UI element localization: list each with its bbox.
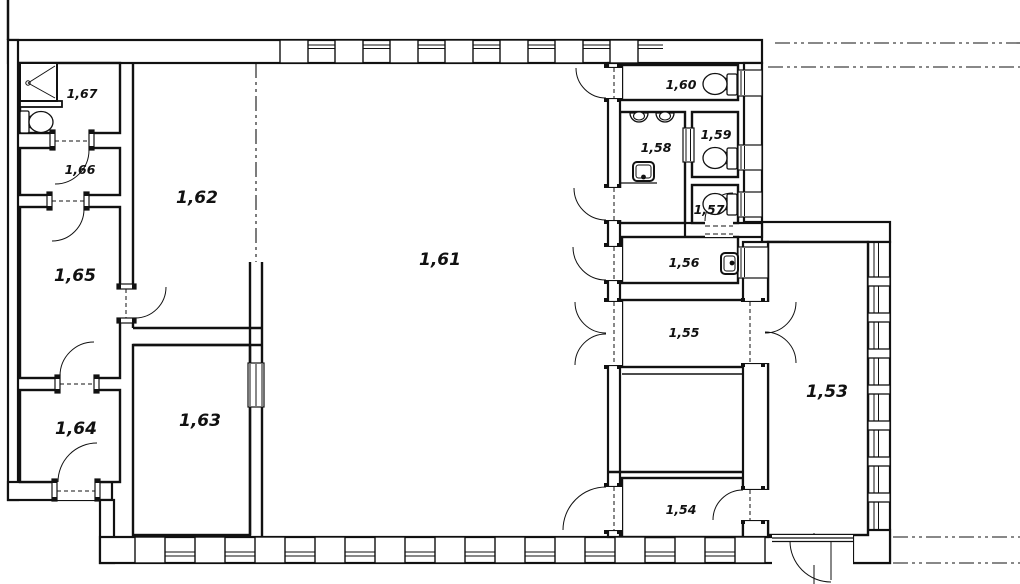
door-jamb-block	[617, 243, 621, 247]
room-label-1-59: 1,59	[701, 127, 732, 142]
room-label-1-61: 1,61	[419, 250, 461, 270]
room-label-1-56: 1,56	[669, 255, 700, 270]
door-jamb-block	[604, 365, 608, 369]
bottom-wall-pier	[615, 537, 645, 563]
sink-icon	[633, 162, 654, 181]
door-jamb-block	[52, 479, 57, 483]
door-jamb-block	[117, 318, 121, 323]
top-wall-pier	[390, 40, 418, 63]
door-jamb-block	[741, 486, 745, 490]
walls	[8, 40, 890, 563]
door-opening	[55, 480, 97, 500]
door-jamb-block	[617, 64, 621, 68]
door-opening	[772, 535, 853, 565]
door-jamb-block	[84, 206, 89, 210]
right-wall-pier	[868, 421, 890, 430]
top-wall-pier	[280, 40, 308, 63]
bottom-wall-pier	[375, 537, 405, 563]
room-label-1-54: 1,54	[666, 502, 697, 517]
door-jamb-block	[761, 363, 765, 367]
room-label-1-60: 1,60	[666, 77, 697, 92]
wall-window	[738, 70, 762, 96]
shower-icon	[20, 63, 57, 101]
bottom-wall-pier	[555, 537, 585, 563]
door-jamb-block	[52, 497, 57, 501]
corridor-wall	[743, 363, 768, 490]
hall-wall	[608, 220, 620, 247]
outer-wall	[8, 40, 18, 500]
door-jamb-block	[617, 483, 621, 487]
outer-wall	[8, 40, 762, 63]
door-jamb-block	[604, 64, 608, 68]
right-wall-pier	[868, 457, 890, 466]
room-label-1-62: 1,62	[176, 188, 218, 208]
hall-wall	[608, 365, 620, 487]
wall-opening	[683, 128, 694, 162]
door-jamb-block	[617, 280, 621, 284]
bottom-wall-pier	[735, 537, 765, 563]
floor-plan-canvas: 1,671,661,651,641,621,631,611,601,581,59…	[0, 0, 1020, 584]
door-jamb-block	[84, 192, 89, 196]
door-jamb-block	[761, 486, 765, 490]
door-jamb-block	[617, 98, 621, 102]
door-swing-arc	[563, 487, 606, 530]
door-jamb-block	[604, 243, 608, 247]
door-swing-arc	[575, 302, 606, 333]
room-label-1-55: 1,55	[669, 325, 700, 340]
room-label-1-65: 1,65	[54, 266, 96, 286]
door-swing-arc	[575, 334, 606, 365]
door-swing-arc	[576, 68, 606, 98]
wall-window	[738, 247, 768, 278]
door-jamb-block	[617, 530, 621, 534]
bottom-wall-pier	[255, 537, 285, 563]
door-jamb-block	[47, 192, 52, 196]
room-label-1-63: 1,63	[179, 411, 221, 431]
door-jamb-block	[617, 184, 621, 188]
door-jamb-block	[617, 298, 621, 302]
door-jamb-block	[50, 130, 55, 134]
door-swing-arc	[135, 287, 166, 318]
toilet-icon	[703, 74, 737, 96]
door-jamb-block	[741, 298, 745, 302]
top-wall-pier	[610, 40, 638, 63]
top-wall-pier	[335, 40, 363, 63]
top-wall-pier	[555, 40, 583, 63]
door-jamb-block	[761, 520, 765, 524]
door-jamb-block	[617, 365, 621, 369]
door-jamb-block	[741, 520, 745, 524]
door-opening	[705, 221, 733, 237]
toilet-icon	[20, 111, 53, 133]
outer-wall	[762, 222, 890, 242]
right-wall-pier	[868, 493, 890, 502]
right-wall-pier	[868, 313, 890, 322]
sink-icon	[721, 253, 738, 274]
room-label-1-64: 1,64	[55, 419, 97, 439]
door-jamb-block	[55, 389, 60, 393]
door-jamb-block	[604, 298, 608, 302]
right-wall-pier	[868, 349, 890, 358]
door-jamb-block	[95, 497, 100, 501]
door-jamb-block	[89, 146, 94, 150]
door-jamb-block	[94, 375, 99, 379]
door-opening	[741, 490, 770, 520]
room-label-1-66: 1,66	[65, 162, 96, 177]
top-wall-pier	[445, 40, 473, 63]
right-wall-pier	[868, 385, 890, 394]
bottom-wall-pier	[435, 537, 465, 563]
door-jamb-block	[95, 479, 100, 483]
door-jamb-block	[604, 530, 608, 534]
door-jamb-block	[604, 184, 608, 188]
door-jamb-block	[55, 375, 60, 379]
right-wall-pier	[868, 277, 890, 286]
room-wall	[133, 345, 250, 535]
room-label-1-58: 1,58	[641, 140, 672, 155]
door-jamb-block	[604, 280, 608, 284]
bottom-wall-pier	[495, 537, 525, 563]
bottom-wall-pier	[135, 537, 165, 563]
door-jamb-block	[617, 220, 621, 224]
bottom-wall-pier	[195, 537, 225, 563]
door-jamb-block	[132, 318, 136, 323]
room-label-1-53: 1,53	[806, 382, 848, 402]
top-wall-pier	[500, 40, 528, 63]
bottom-wall-pier	[675, 537, 705, 563]
wall-window	[738, 192, 762, 217]
door-jamb-block	[47, 206, 52, 210]
door-swing-arc	[573, 247, 606, 280]
floor-plan-drawing: 1,671,661,651,641,621,631,611,601,581,59…	[0, 0, 1020, 584]
door-jamb-block	[604, 98, 608, 102]
bottom-wall-pier	[315, 537, 345, 563]
wall-window	[738, 145, 762, 170]
toilet-icon	[703, 148, 737, 170]
door-jamb-block	[50, 146, 55, 150]
door-jamb-block	[117, 284, 121, 289]
door-swing-arc	[574, 188, 606, 220]
door-jamb-block	[89, 130, 94, 134]
door-jamb-block	[94, 389, 99, 393]
door-jamb-block	[604, 483, 608, 487]
door-jamb-block	[761, 298, 765, 302]
door-jamb-block	[604, 220, 608, 224]
door-jamb-block	[741, 363, 745, 367]
room-label-1-57: 1,57	[694, 202, 725, 217]
hall-wall	[608, 98, 620, 188]
room-label-1-67: 1,67	[67, 86, 98, 101]
door-jamb-block	[132, 284, 136, 289]
